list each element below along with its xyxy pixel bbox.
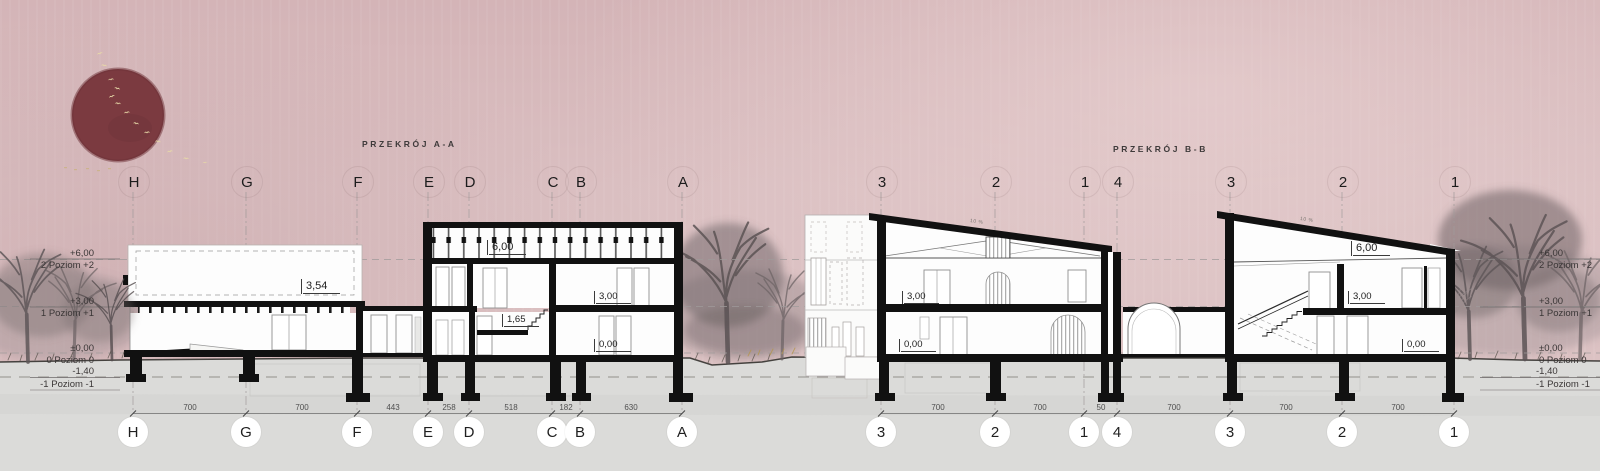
dim-b-3: 50 — [1097, 403, 1106, 412]
sun-icon — [72, 69, 164, 161]
grid-label-top-d: D — [454, 166, 486, 198]
grid-label-top-3b: 3 — [1215, 166, 1247, 198]
level-name-p0-left: 0 Poziom 0 — [32, 355, 94, 366]
grid-bubble-3a: 3 — [866, 417, 896, 447]
architectural-section-board: PRZEKRÓJ A-A PRZEKRÓJ B-B H G F E D C B … — [0, 0, 1600, 471]
dim-a-7: 630 — [624, 403, 637, 412]
grid-bubble-4: 4 — [1102, 417, 1132, 447]
level-value-p1-right: +3,00 — [1539, 296, 1563, 307]
level-value-p0-left: ±0,00 — [32, 343, 94, 354]
dim-a-1: 700 — [183, 403, 196, 412]
grid-bubble-2b: 2 — [1327, 417, 1357, 447]
level-name-p1-right: 1 Poziom +1 — [1539, 308, 1592, 319]
grid-bubble-d: D — [454, 417, 484, 447]
mark-a2-mezzanine: 1,65 — [504, 314, 539, 327]
grid-bubble-h: H — [118, 417, 148, 447]
grid-bubble-2a: 2 — [980, 417, 1010, 447]
grid-bubble-f: F — [342, 417, 372, 447]
level-name-m1-left: -1 Poziom -1 — [32, 379, 94, 390]
grid-label-top-2b: 2 — [1327, 166, 1359, 198]
mark-a2-floor1: 3,00 — [596, 291, 631, 304]
grid-label-top-1b: 1 — [1439, 166, 1471, 198]
grid-bubble-e: E — [413, 417, 443, 447]
mark-b1-floor1: 3,00 — [904, 291, 939, 304]
grid-label-top-h: H — [118, 166, 150, 198]
section-drawing-canvas — [0, 0, 1600, 471]
grid-bubble-1a: 1 — [1069, 417, 1099, 447]
dim-a-6: 182 — [559, 403, 572, 412]
level-name-m1-right: -1 Poziom -1 — [1536, 379, 1590, 390]
mark-b2-roof-height: 6,00 — [1353, 242, 1390, 256]
dim-b-4: 700 — [1167, 403, 1180, 412]
grid-label-top-4: 4 — [1102, 166, 1134, 198]
grid-bubble-a: A — [667, 417, 697, 447]
level-value-p2-right: +6,00 — [1539, 248, 1563, 259]
grid-label-top-e: E — [413, 166, 445, 198]
grid-label-top-b: B — [565, 166, 597, 198]
grid-bubble-3b: 3 — [1215, 417, 1245, 447]
level-value-m1-left: -1,40 — [32, 366, 94, 377]
mark-a1-attic-height: 3,54 — [303, 280, 340, 294]
dim-a-3: 443 — [386, 403, 399, 412]
grid-bubble-g: G — [231, 417, 261, 447]
dim-b-6: 700 — [1391, 403, 1404, 412]
grid-bubble-1b: 1 — [1439, 417, 1469, 447]
mark-a2-ground: 0,00 — [596, 339, 631, 352]
level-name-p1-left: 1 Poziom +1 — [32, 308, 94, 319]
grid-label-top-f: F — [342, 166, 374, 198]
elevation-behind-b1 — [805, 215, 883, 379]
dim-b-2: 700 — [1033, 403, 1046, 412]
dim-b-5: 700 — [1279, 403, 1292, 412]
level-value-p1-left: +3,00 — [32, 296, 94, 307]
mark-a2-roof-height: 6,00 — [489, 241, 526, 255]
grid-bubble-b: B — [565, 417, 595, 447]
grid-label-top-1a: 1 — [1069, 166, 1101, 198]
dim-a-4: 258 — [442, 403, 455, 412]
connector-b — [1123, 303, 1225, 358]
level-name-p2-right: 2 Poziom +2 — [1539, 260, 1592, 271]
grid-bubble-c: C — [537, 417, 567, 447]
section-b-title: PRZEKRÓJ B-B — [1113, 144, 1208, 154]
mark-b1-ground: 0,00 — [901, 339, 936, 352]
grid-label-top-a: A — [667, 166, 699, 198]
level-value-p2-left: +6,00 — [32, 248, 94, 259]
section-a-title: PRZEKRÓJ A-A — [362, 139, 457, 149]
mark-b2-ground: 0,00 — [1404, 339, 1439, 352]
connector-a — [363, 306, 423, 357]
level-value-m1-right: -1,40 — [1536, 366, 1558, 377]
level-name-p0-right: 0 Poziom 0 — [1539, 355, 1587, 366]
grid-label-top-g: G — [231, 166, 263, 198]
dim-a-2: 700 — [295, 403, 308, 412]
dim-a-5: 518 — [504, 403, 517, 412]
level-value-p0-right: ±0,00 — [1539, 343, 1563, 354]
dim-b-1: 700 — [931, 403, 944, 412]
grid-label-top-3a: 3 — [866, 166, 898, 198]
mark-b2-floor1: 3,00 — [1350, 291, 1385, 304]
level-name-p2-left: 2 Poziom +2 — [32, 260, 94, 271]
grid-label-top-2a: 2 — [980, 166, 1012, 198]
